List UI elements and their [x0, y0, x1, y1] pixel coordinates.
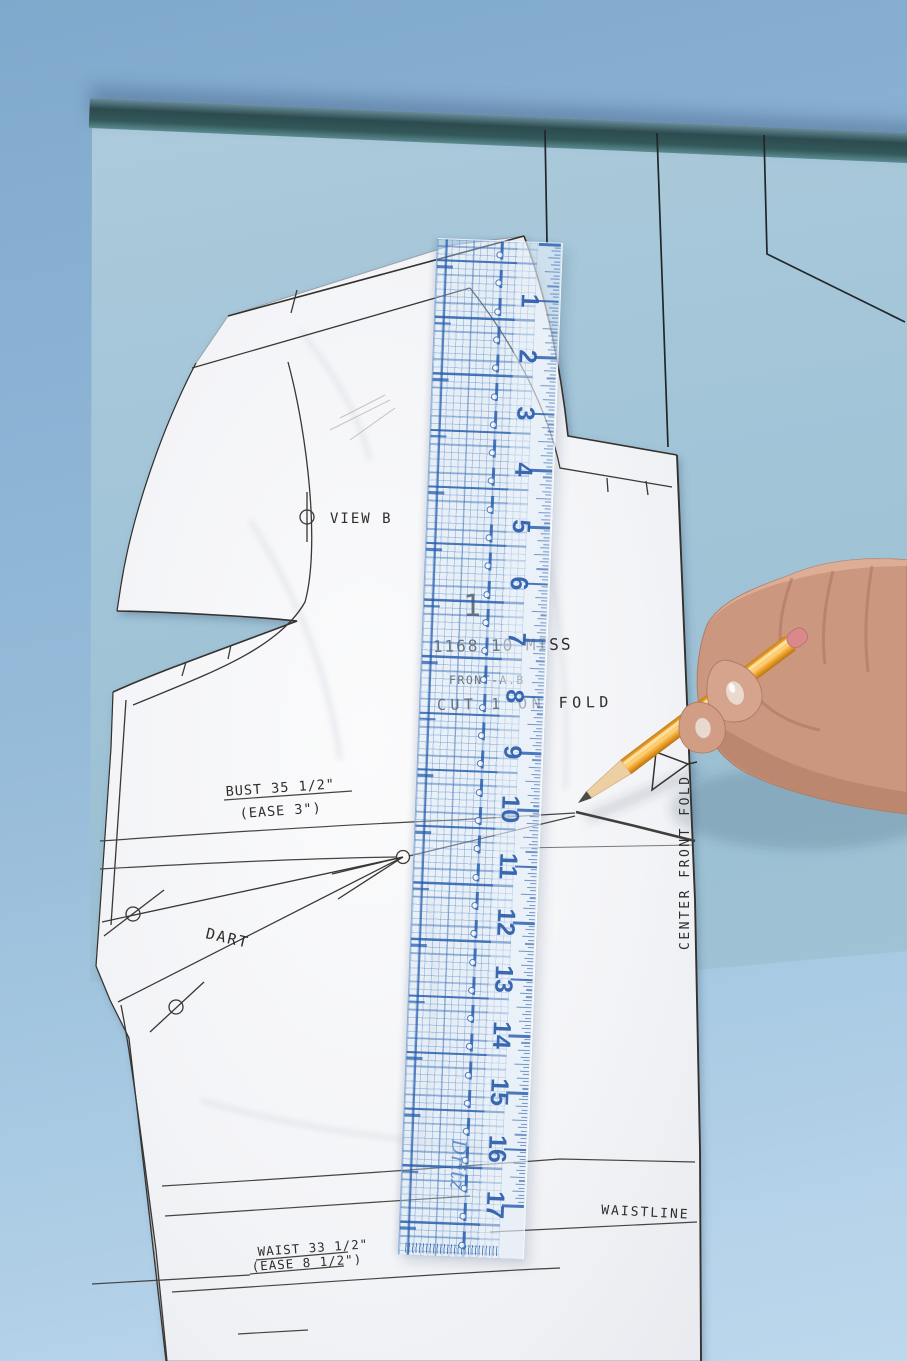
photo-scene: VIEW B 1 1168 10 MISS FRONT-A.B CUT 1 ON…	[0, 0, 907, 1361]
hand-pencil-layer	[0, 0, 907, 1361]
pencil-wood-cone	[584, 760, 631, 801]
